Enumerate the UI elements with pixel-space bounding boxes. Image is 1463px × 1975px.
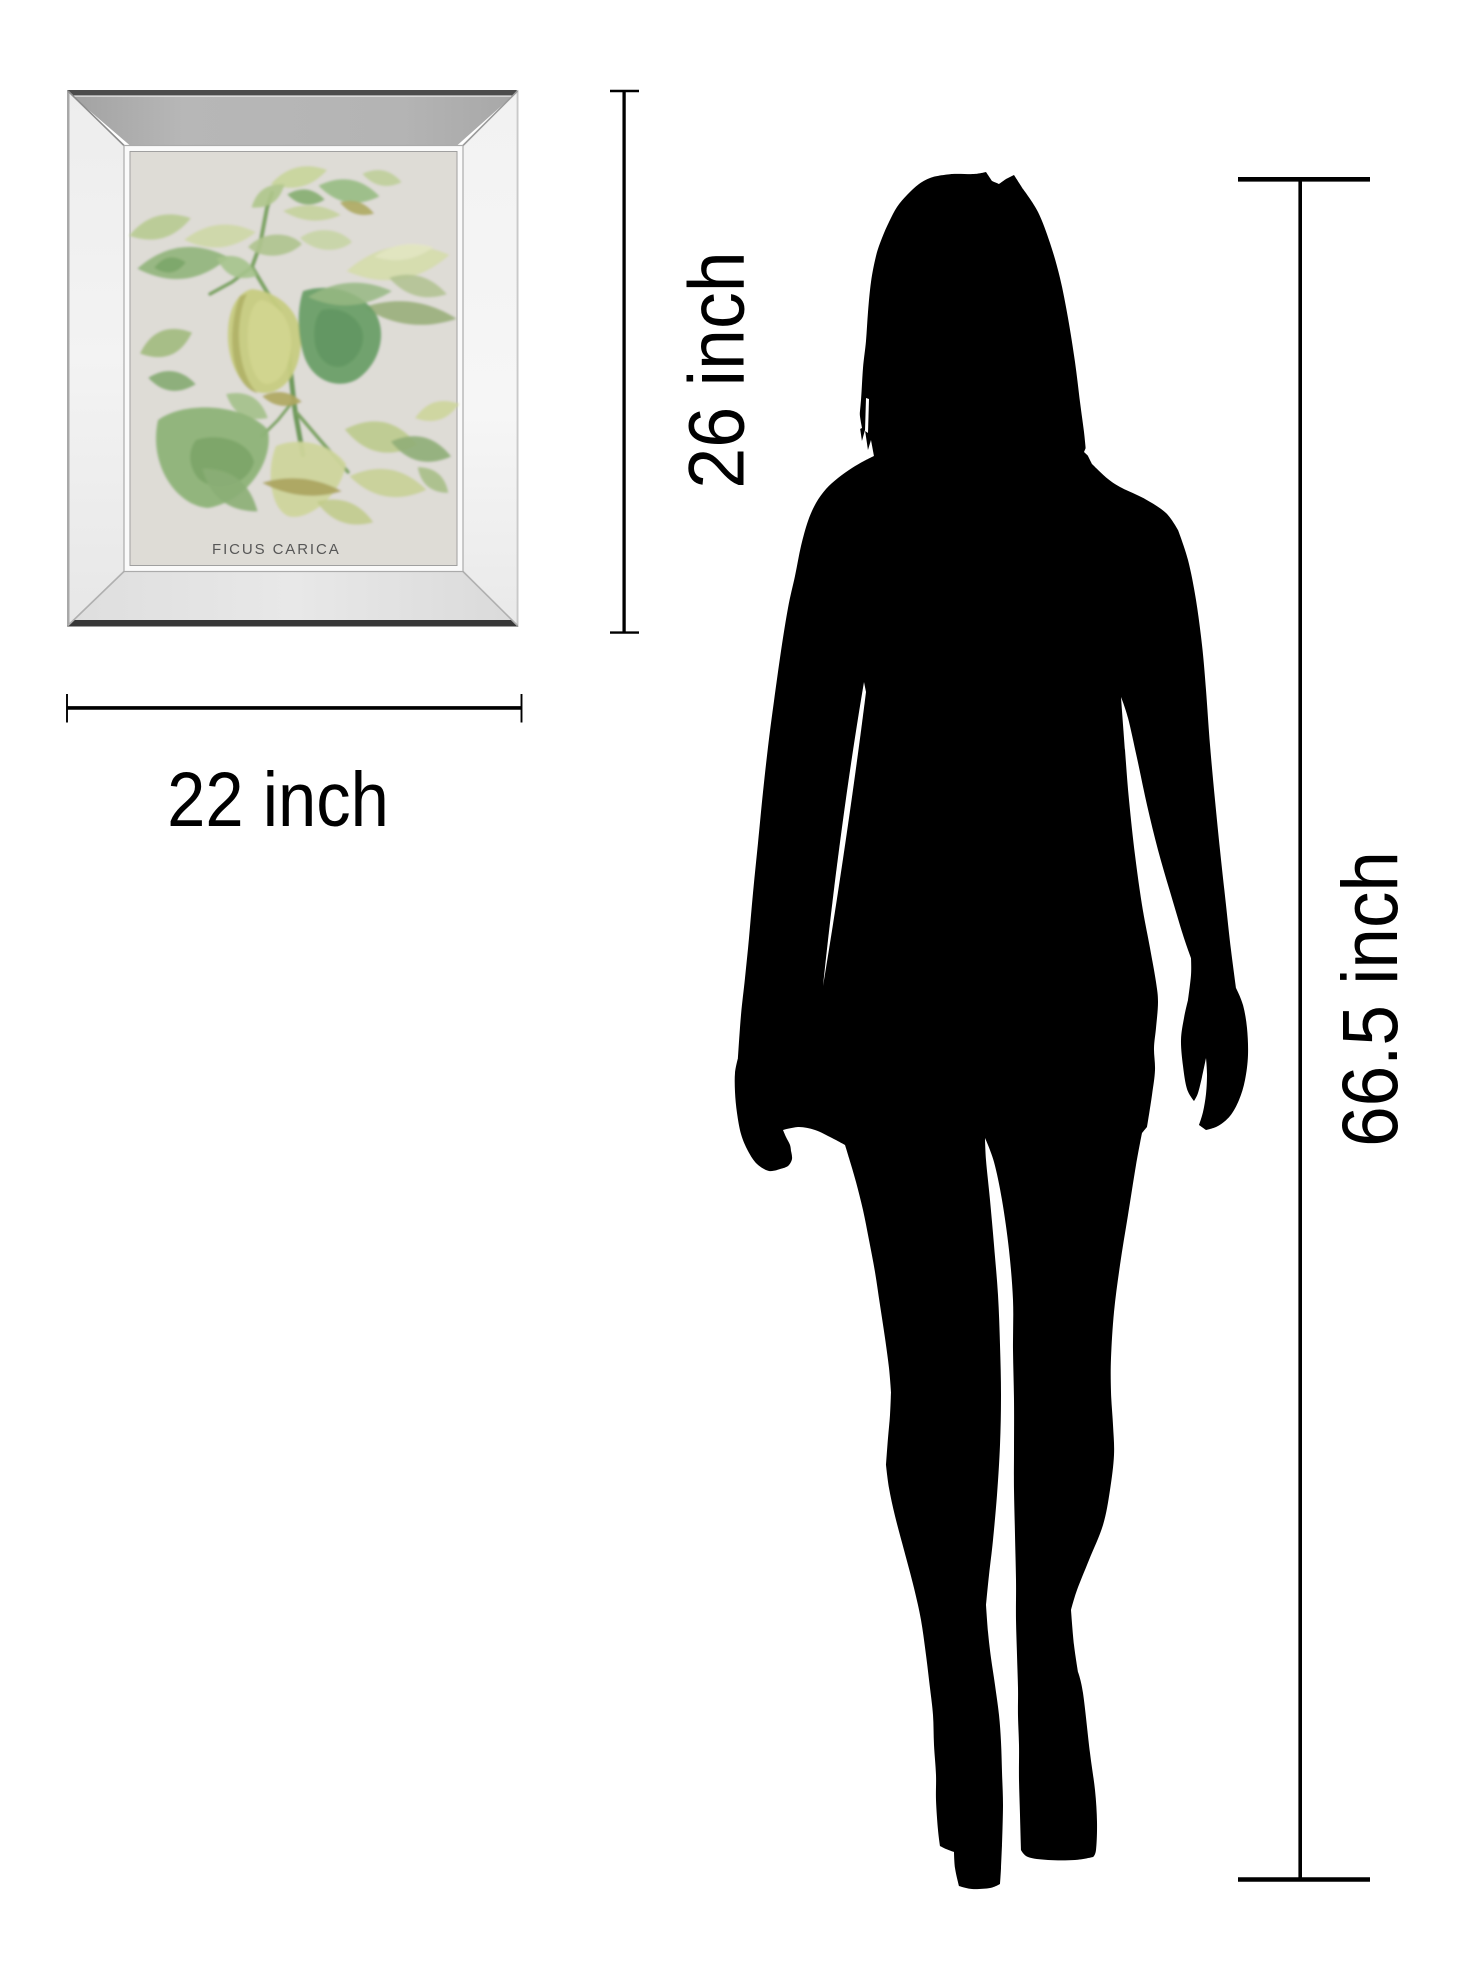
svg-text:FICUS CARICA: FICUS CARICA — [212, 541, 341, 558]
svg-text:22 inch: 22 inch — [167, 757, 389, 842]
svg-text:26 inch: 26 inch — [673, 251, 761, 488]
svg-text:66.5 inch: 66.5 inch — [1326, 851, 1414, 1147]
